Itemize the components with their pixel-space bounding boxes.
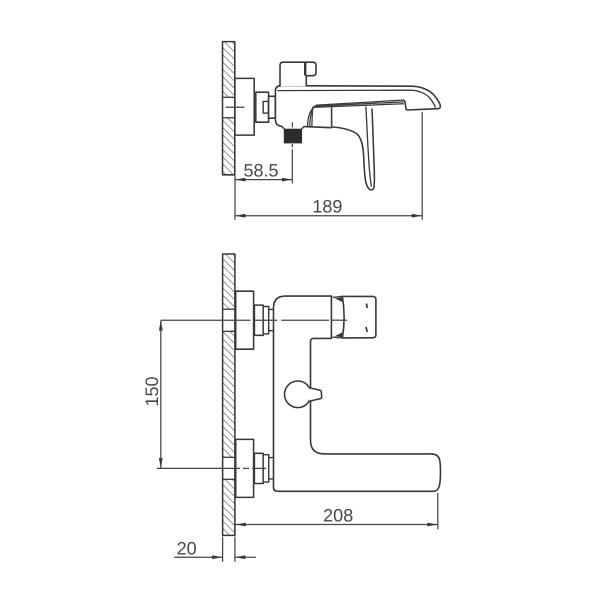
- svg-text:208: 208: [323, 506, 353, 526]
- svg-text:189: 189: [312, 196, 342, 216]
- svg-text:58.5: 58.5: [243, 160, 278, 180]
- svg-text:20: 20: [177, 539, 197, 559]
- svg-text:150: 150: [142, 376, 162, 406]
